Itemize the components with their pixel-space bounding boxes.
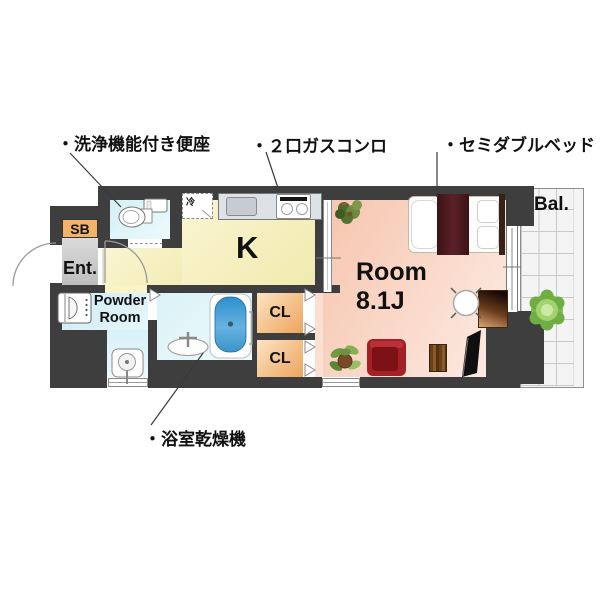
powder-window: [108, 378, 148, 387]
fridge-space: 冷: [182, 193, 213, 219]
toilet-floor: [110, 200, 170, 239]
bed-pillow: [477, 226, 499, 249]
powder-room-floor-lower: [107, 330, 148, 377]
main-room-name: Room: [356, 258, 427, 287]
closet-upper-label: CL: [269, 304, 290, 322]
desk-icon: [478, 290, 508, 328]
balcony-label: Bal.: [534, 194, 569, 216]
closet-lower-label: CL: [269, 350, 290, 368]
kitchen-label: K: [236, 230, 258, 266]
fridge-label: 冷: [186, 195, 195, 208]
shoe-box-label: SB: [70, 221, 89, 237]
powder-doorway-floor: [105, 285, 147, 293]
powder-room-label: Powder Room: [88, 293, 152, 326]
closet-lower: CL: [257, 340, 303, 377]
main-room-label: Room 8.1J: [356, 258, 427, 316]
stove-icon: [276, 194, 311, 219]
entrance-label: Ent.: [62, 258, 98, 279]
room-bottom-window: [322, 378, 360, 387]
main-room-floor-strip: [315, 293, 323, 377]
stove-burner-left: [281, 203, 293, 215]
callout-semi-double-bed: ・セミダブルベッド: [442, 131, 595, 156]
closet-upper-door: [303, 293, 315, 333]
callout-washlet: ・洗浄機能付き便座: [57, 130, 210, 155]
kitchen-sink-icon: [226, 197, 257, 216]
bathroom-floor: [157, 293, 252, 360]
kitchen-room-sliding-door: [323, 200, 332, 292]
closet-upper: CL: [257, 293, 303, 333]
floorplan: SB CL CL: [0, 0, 600, 600]
stove-grill: [280, 197, 307, 201]
callout-bath-dryer: ・浴室乾燥機: [144, 425, 246, 450]
closet-lower-door: [303, 340, 315, 377]
shoe-box: SB: [62, 219, 98, 238]
bed-headboard: [499, 194, 505, 255]
bed-pillow: [477, 200, 499, 223]
stove-burner-right: [296, 203, 308, 215]
entrance-door-arc: [13, 243, 56, 286]
callout-gas-stove: ・２口ガスコンロ: [251, 132, 387, 157]
hall-floor: [103, 248, 182, 285]
bed-duvet-accent: [437, 194, 469, 255]
main-room-size: 8.1J: [356, 287, 427, 316]
table-icon: [429, 344, 447, 372]
